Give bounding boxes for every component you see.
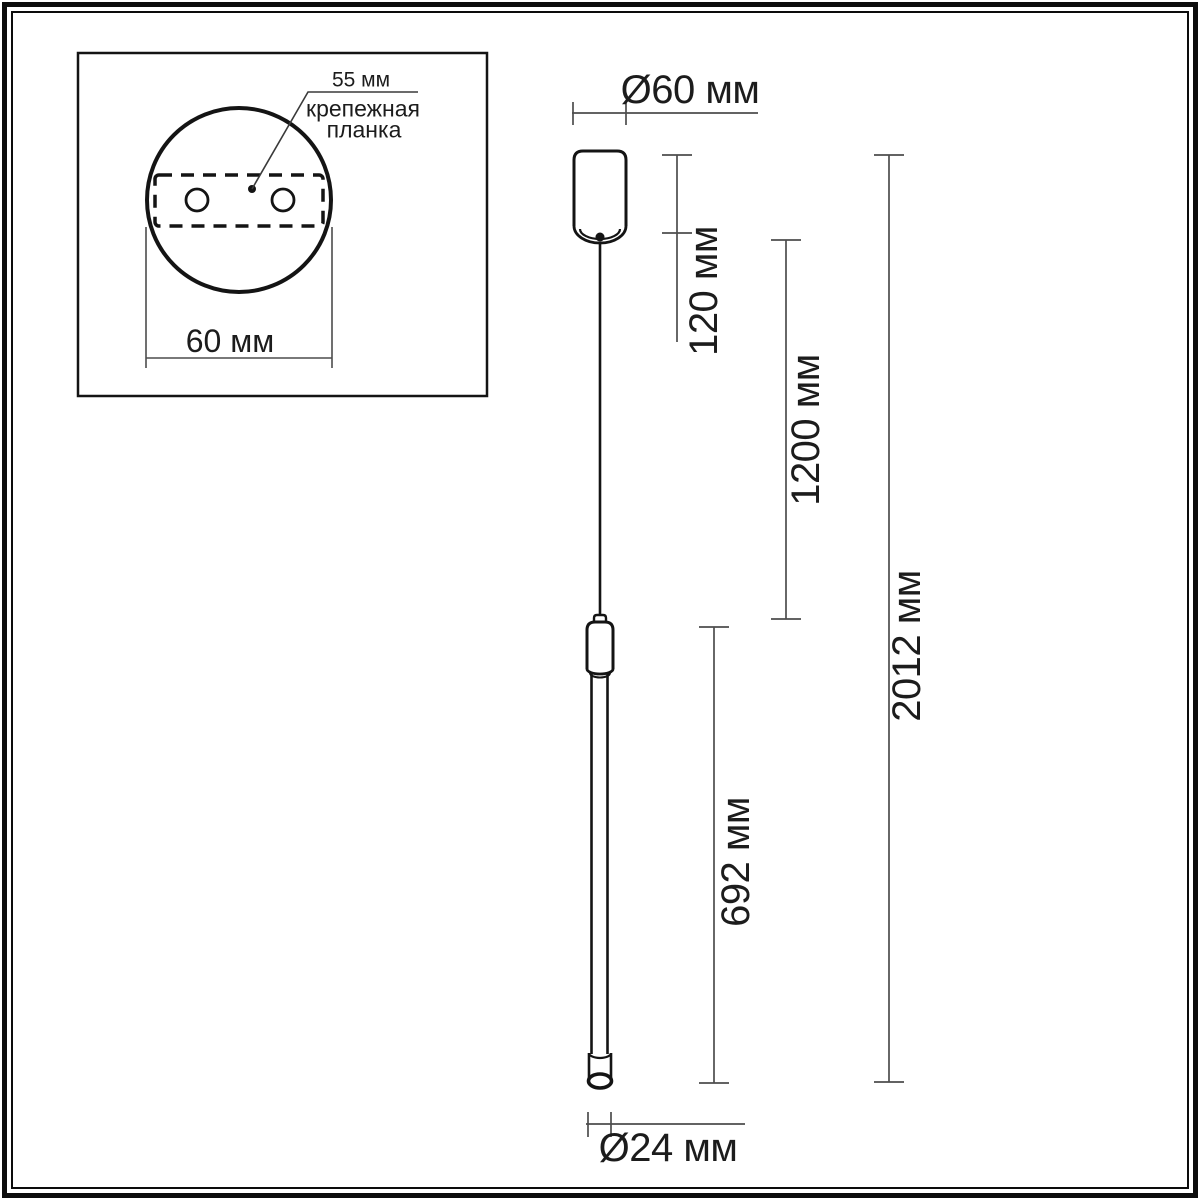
tube-diameter-label: Ø24 мм [599, 1128, 738, 1168]
line-art [0, 0, 1200, 1200]
inset-width-label: 60 мм [186, 325, 274, 357]
cable-exit-dot [596, 233, 605, 242]
mounting-hole-right [272, 189, 294, 211]
inset-hole-spacing-label: 55 мм [332, 70, 390, 91]
canopy-height-label: 120 мм [684, 226, 724, 356]
lamp-head-cap [587, 622, 613, 669]
overall-length-label: 2012 мм [887, 570, 927, 722]
tube-end-cap-bottom [589, 1074, 612, 1088]
fixture-elevation [574, 151, 626, 1088]
dimension-drawing-page: { "inset": { "spacing_label": "55 мм", "… [0, 0, 1200, 1200]
inset-plate-label-line2: планка [327, 119, 402, 142]
mounting-hole-left [186, 189, 208, 211]
canopy-base-circle [147, 108, 331, 292]
inset-canopy-bottom-view [78, 53, 487, 396]
cable-length-label: 1200 мм [786, 354, 826, 506]
dimension-lines [572, 102, 904, 1137]
mounting-plate-dashed-outline [155, 175, 323, 226]
canopy-diameter-label: Ø60 мм [621, 70, 760, 110]
tube-length-label: 692 мм [716, 797, 756, 927]
canopy-body [574, 151, 626, 226]
